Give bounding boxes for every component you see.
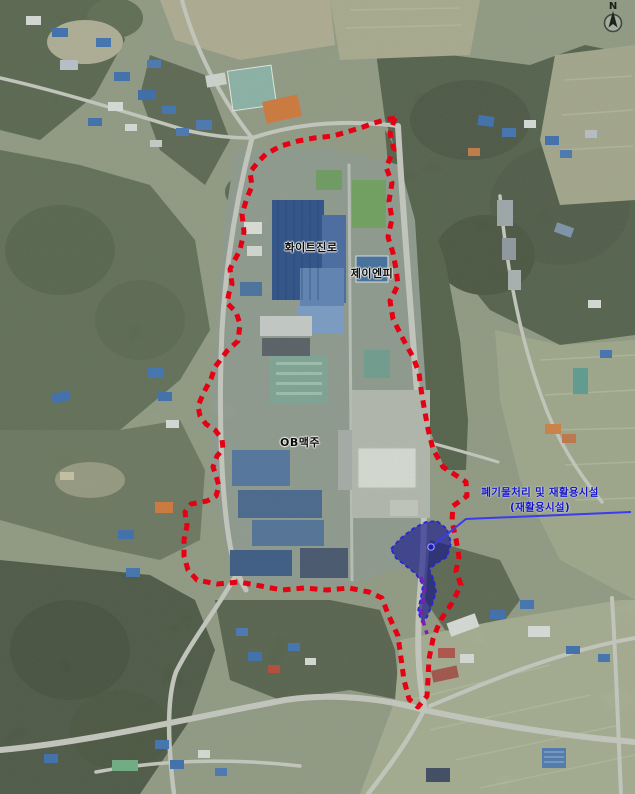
- north-arrow: N: [605, 1, 622, 32]
- north-label: N: [609, 1, 617, 12]
- label-company-1: 화이트진로: [284, 239, 337, 255]
- facility-area-polygon: [391, 521, 451, 622]
- annotation-overlay: N: [0, 0, 635, 794]
- label-facility-line1: 폐기물처리 및 재활용시설: [481, 485, 598, 500]
- facility-leader-line: [431, 512, 631, 547]
- label-company-3: OB맥주: [280, 434, 320, 450]
- label-facility-line2: (재활용시설): [481, 500, 598, 515]
- facility-marker-dot: [428, 544, 434, 550]
- satellite-map: N 화이트진로 제이엔피 OB맥주 폐기물처리 및 재활용시설 (재활용시설): [0, 0, 635, 794]
- label-company-2: 제이엔피: [351, 265, 393, 281]
- label-facility: 폐기물처리 및 재활용시설 (재활용시설): [481, 485, 598, 514]
